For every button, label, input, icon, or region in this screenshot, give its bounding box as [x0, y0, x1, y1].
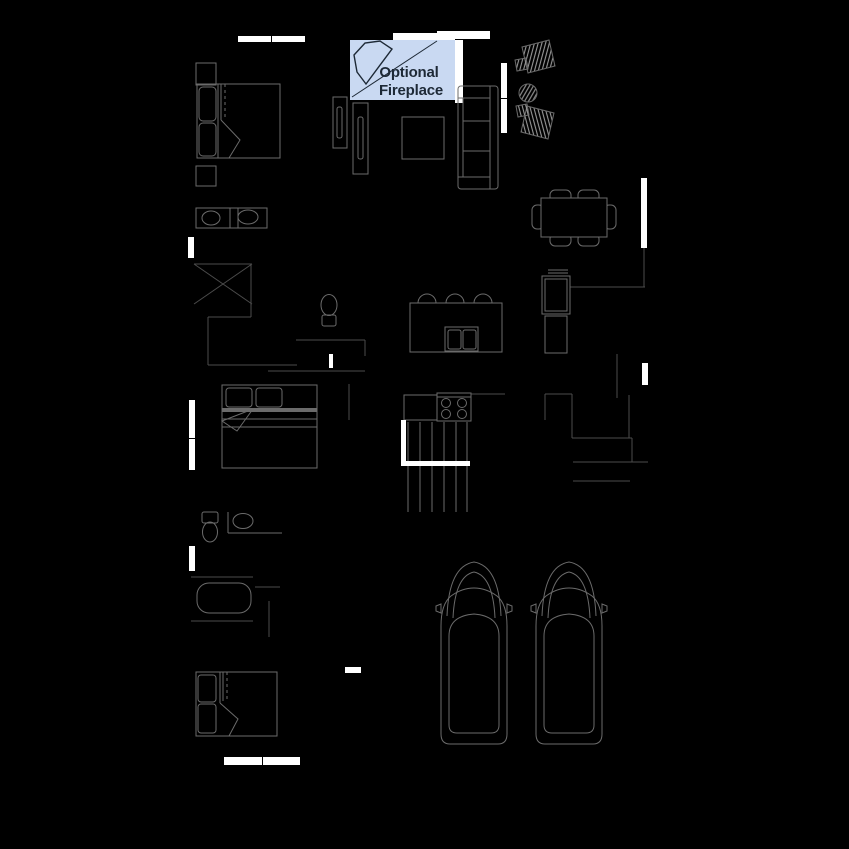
- pillow: [199, 123, 216, 156]
- window: [189, 439, 195, 470]
- fridge-outline: [542, 276, 570, 314]
- tv: [358, 117, 363, 159]
- label-line-2: Fireplace: [379, 82, 443, 99]
- window: [455, 40, 463, 103]
- toilet-bowl: [203, 522, 218, 542]
- pillow: [198, 704, 216, 733]
- window: [263, 757, 300, 765]
- window: [189, 400, 195, 438]
- stair-railing: [401, 461, 470, 466]
- sofa-outline: [458, 86, 498, 189]
- sofa: [458, 86, 498, 189]
- blanket-fold: [222, 409, 253, 431]
- accent-chair: [515, 40, 555, 73]
- window: [641, 178, 647, 248]
- sink: [202, 211, 220, 225]
- window: [224, 757, 262, 765]
- window: [272, 36, 305, 42]
- window: [437, 31, 490, 39]
- floor-plan-canvas: Optional Fireplace: [0, 0, 849, 849]
- staircase: [401, 420, 470, 512]
- bar-stool: [446, 294, 464, 303]
- pillow: [199, 87, 216, 121]
- floor-plan: Optional Fireplace: [0, 0, 849, 849]
- window: [501, 63, 507, 98]
- window: [189, 546, 195, 571]
- chair-arm: [516, 104, 529, 117]
- bath-2: [197, 512, 282, 613]
- bathtub: [197, 583, 251, 613]
- blanket-fold: [220, 703, 238, 736]
- fridge-inner: [545, 279, 567, 311]
- window: [188, 237, 194, 258]
- pillow: [226, 388, 252, 407]
- chair-arm: [515, 58, 528, 71]
- dining-area: [532, 190, 616, 246]
- round-side-table: [519, 84, 537, 102]
- pillow: [198, 675, 216, 702]
- refrigerator: [542, 270, 570, 314]
- toilet-tank: [202, 512, 218, 523]
- accent-chair: [516, 104, 554, 139]
- car: [531, 562, 607, 744]
- tv: [337, 107, 342, 138]
- nightstand: [196, 63, 216, 85]
- exterior-windows: [188, 31, 648, 765]
- dining-table: [541, 198, 607, 237]
- shower: [194, 264, 252, 317]
- door-sidelight: [345, 667, 361, 673]
- bar-stool: [474, 294, 492, 303]
- burner: [458, 399, 467, 408]
- range-cooktop: [437, 393, 471, 421]
- nightstand: [196, 166, 216, 186]
- burner: [442, 410, 451, 419]
- window: [501, 99, 507, 133]
- master-bedroom: [196, 63, 280, 186]
- window: [238, 36, 271, 42]
- single-vanity: [228, 512, 282, 533]
- blanket-fold: [221, 120, 240, 158]
- blanket-band: [222, 408, 317, 412]
- sink: [233, 514, 253, 529]
- car: [436, 562, 512, 744]
- window: [329, 354, 333, 368]
- media-console: [353, 103, 368, 174]
- optional-fireplace-label[interactable]: Optional Fireplace: [350, 40, 455, 100]
- master-bath: [194, 208, 337, 326]
- pantry-cabinet: [545, 316, 567, 353]
- stair-railing: [401, 420, 406, 466]
- toilet-tank: [322, 315, 336, 326]
- pillow: [256, 388, 282, 407]
- label-line-1: Optional: [379, 64, 438, 81]
- window: [642, 363, 648, 385]
- bar-stool: [418, 294, 436, 303]
- bedroom-3: [196, 672, 277, 736]
- double-vanity: [196, 208, 267, 228]
- kitchen-counter: [404, 395, 437, 420]
- burner: [442, 399, 451, 408]
- toilet: [202, 512, 218, 542]
- toilet: [321, 295, 337, 327]
- media-console: [333, 97, 347, 148]
- burner: [458, 410, 467, 419]
- bedroom-2: [222, 385, 317, 468]
- sink: [238, 210, 258, 224]
- toilet-bowl: [321, 295, 337, 316]
- garage: [436, 562, 607, 744]
- ottoman: [402, 117, 444, 159]
